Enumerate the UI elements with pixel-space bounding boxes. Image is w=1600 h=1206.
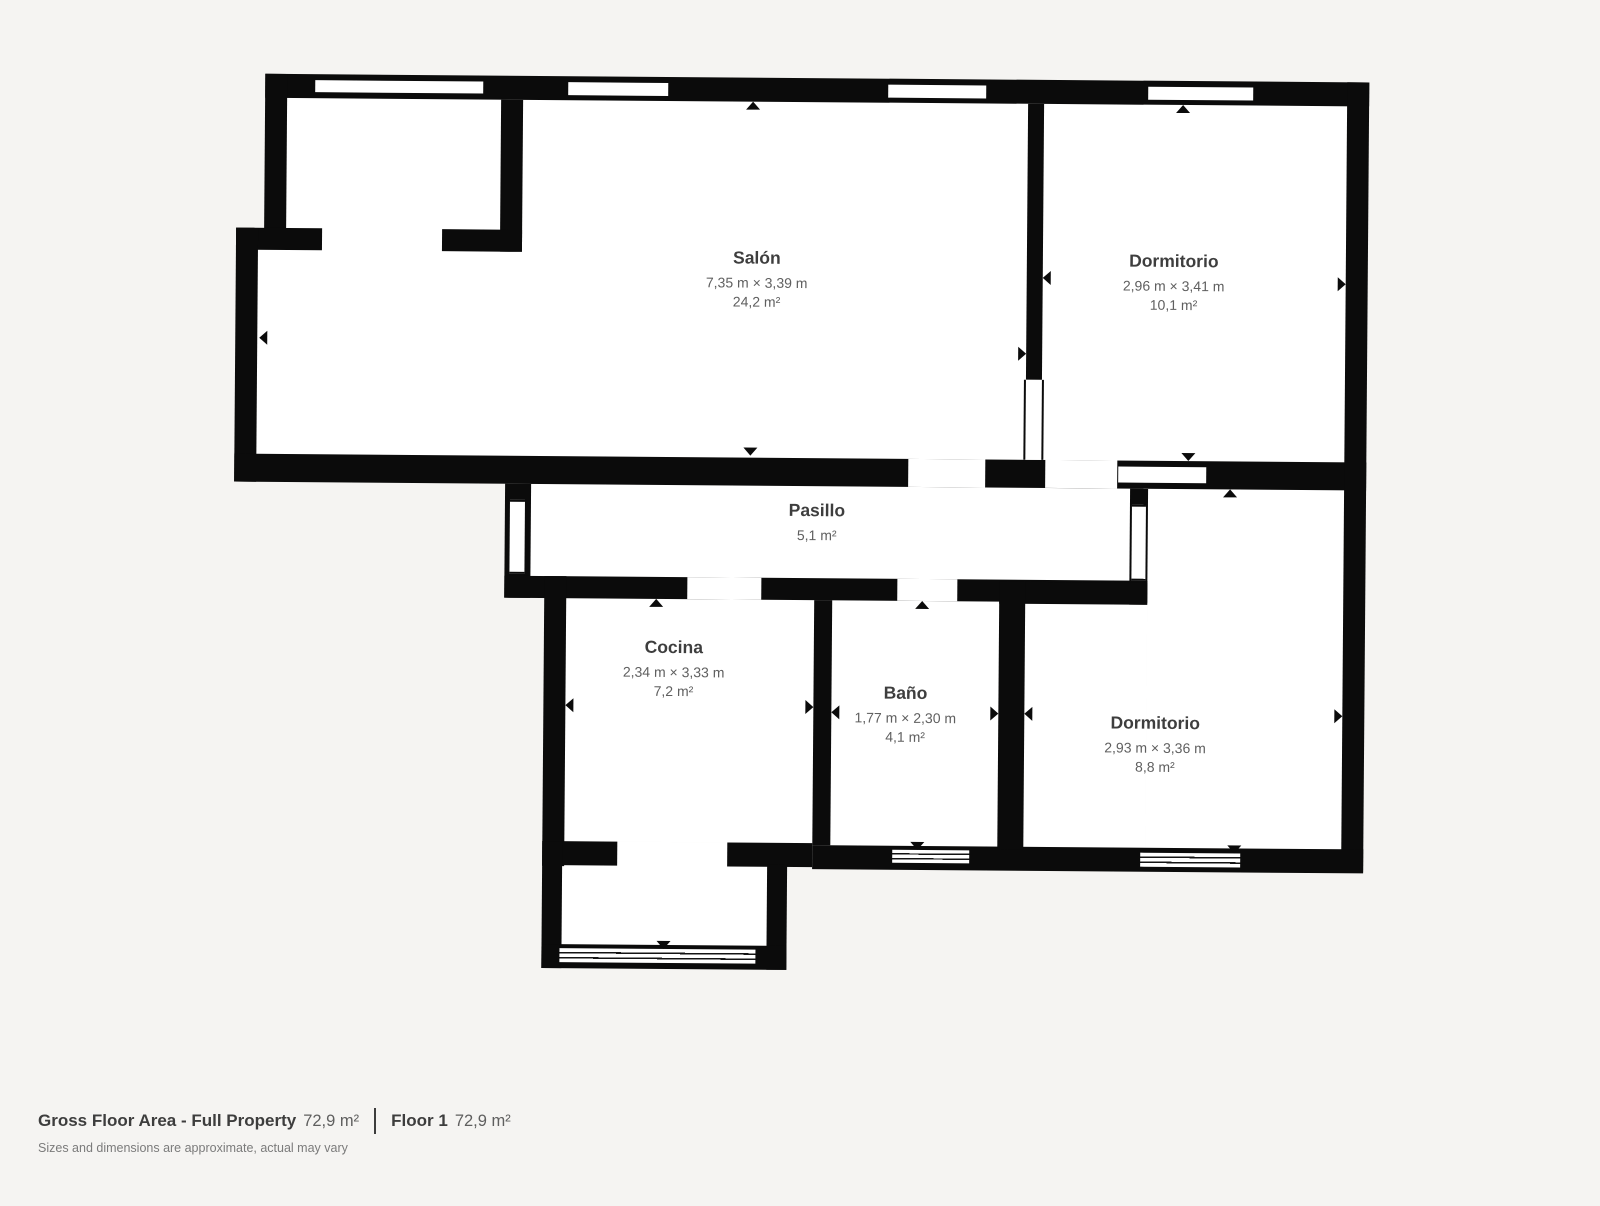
room-name: Pasillo	[667, 497, 967, 524]
room-area: 24,2 m²	[606, 292, 906, 314]
wall-balcony-left	[264, 74, 287, 232]
disclaimer-text: Sizes and dimensions are approximate, ac…	[38, 1141, 511, 1155]
door-opening-dormitorio2	[1131, 505, 1146, 581]
room-label-pasillo: Pasillo 5,1 m²	[667, 497, 967, 546]
room-dimensions: 2,93 m × 3,36 m	[1005, 737, 1305, 759]
measure-arrow-down-icon	[1181, 453, 1195, 461]
room-name: Salón	[607, 244, 907, 271]
window	[892, 850, 969, 864]
window	[1148, 87, 1253, 101]
measure-arrow-up-icon	[1176, 105, 1190, 113]
wall-salon-dormitorio-divider	[1026, 104, 1044, 380]
room-dimensions: 2,96 m × 3,41 m	[1024, 275, 1324, 297]
room-floor-balcony-bottom	[562, 863, 768, 946]
divider	[374, 1108, 376, 1134]
footer: Gross Floor Area - Full Property 72,9 m²…	[38, 1108, 511, 1155]
floor-label: Floor 1	[391, 1111, 448, 1131]
footer-areas: Gross Floor Area - Full Property 72,9 m²…	[38, 1108, 511, 1134]
door-opening-salon-pasillo	[908, 459, 985, 488]
room-name: Baño	[755, 680, 1055, 707]
room-floor-balcony-top	[286, 94, 503, 232]
door-opening-salon-dormitorio1	[1023, 380, 1044, 460]
measure-arrow-right-icon	[1018, 347, 1026, 361]
wall-cocina-left	[542, 576, 566, 866]
room-dimensions: 7,35 m × 3,39 m	[607, 272, 907, 294]
room-area: 8,8 m²	[1005, 757, 1305, 779]
floor-plan: Salón 7,35 m × 3,39 m 24,2 m² Dormitorio…	[0, 0, 1600, 1206]
entrance-door-opening	[509, 500, 525, 574]
room-name: Dormitorio	[1005, 710, 1305, 737]
measure-arrow-down-icon	[656, 941, 670, 949]
floorplan-page: { "colors": { "background": "#f5f4f2", "…	[0, 0, 1600, 1200]
floor-area-value: 72,9 m²	[455, 1112, 511, 1131]
room-name: Cocina	[524, 634, 824, 661]
room-label-dormitorio2: Dormitorio 2,93 m × 3,36 m 8,8 m²	[1005, 710, 1306, 779]
room-area: 5,1 m²	[667, 524, 967, 546]
measure-arrow-right-icon	[1334, 709, 1342, 723]
measure-arrow-down-icon	[743, 448, 757, 456]
room-name: Dormitorio	[1024, 248, 1324, 275]
room-floor-dormitorio2	[1145, 489, 1344, 850]
measure-arrow-up-icon	[649, 599, 663, 607]
door-opening-bano	[897, 579, 957, 601]
room-area: 10,1 m²	[1023, 295, 1323, 317]
door-passage	[617, 842, 727, 867]
door-opening-dormitorio1-pasillo	[1045, 460, 1117, 489]
room-label-salon: Salón 7,35 m × 3,39 m 24,2 m²	[606, 244, 907, 313]
wall-cocina-bottom-right	[727, 842, 812, 867]
gross-floor-area-value: 72,9 m²	[303, 1112, 359, 1131]
window	[315, 80, 483, 93]
measure-arrow-up-icon	[915, 601, 929, 609]
measure-arrow-left-icon	[259, 331, 267, 345]
measure-arrow-up-icon	[746, 102, 760, 110]
measure-arrow-down-icon	[1227, 845, 1241, 853]
window	[1140, 853, 1240, 868]
door-opening-cocina	[687, 577, 761, 600]
measure-arrow-down-icon	[910, 842, 924, 850]
window	[1118, 466, 1206, 483]
window	[888, 85, 986, 99]
room-label-dormitorio1: Dormitorio 2,96 m × 3,41 m 10,1 m²	[1023, 248, 1324, 317]
gross-floor-area-label: Gross Floor Area - Full Property	[38, 1111, 296, 1131]
measure-arrow-up-icon	[1223, 489, 1237, 497]
wall-salon-left	[234, 228, 258, 482]
measure-arrow-right-icon	[1338, 277, 1346, 291]
window	[559, 948, 755, 964]
window	[568, 82, 668, 96]
wall-balcony-bottom-right	[442, 229, 522, 252]
